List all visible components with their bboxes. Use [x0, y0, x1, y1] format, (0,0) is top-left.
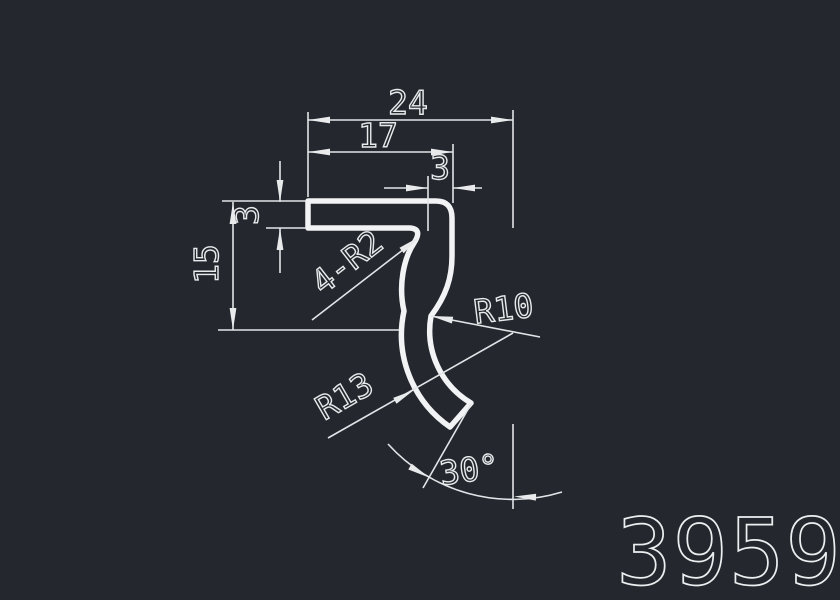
technical-drawing: 24 17 3 15 3	[0, 0, 840, 600]
dim-label-3-top: 3	[430, 148, 450, 187]
arrowhead	[230, 308, 237, 330]
dim-leg-width: 3	[384, 148, 482, 191]
arrowhead	[308, 117, 330, 124]
dim-label-3-left: 3	[227, 205, 266, 225]
dim-overall-width: 24	[308, 83, 513, 123]
arrowhead	[408, 464, 429, 478]
arrowhead	[277, 180, 284, 202]
dim-thickness: 3	[227, 161, 283, 273]
label-R10: R10	[472, 286, 536, 332]
dim-end-angle: 30°	[388, 404, 562, 509]
arrowhead	[277, 228, 284, 250]
cad-drawing-canvas: 24 17 3 15 3	[0, 0, 840, 600]
dim-label-30deg: 30°	[437, 446, 501, 493]
arrowhead	[406, 185, 428, 192]
arrowhead	[308, 149, 330, 156]
arrowhead	[491, 117, 513, 124]
dim-label-17: 17	[358, 116, 398, 155]
arrowhead	[453, 185, 475, 192]
arrowhead	[431, 316, 453, 324]
part-number: 3959	[616, 499, 840, 600]
label-R13: R13	[309, 364, 380, 428]
arrowhead	[393, 390, 414, 404]
dim-label-15: 15	[187, 244, 226, 284]
label-4-R2: 4-R2	[304, 222, 391, 302]
